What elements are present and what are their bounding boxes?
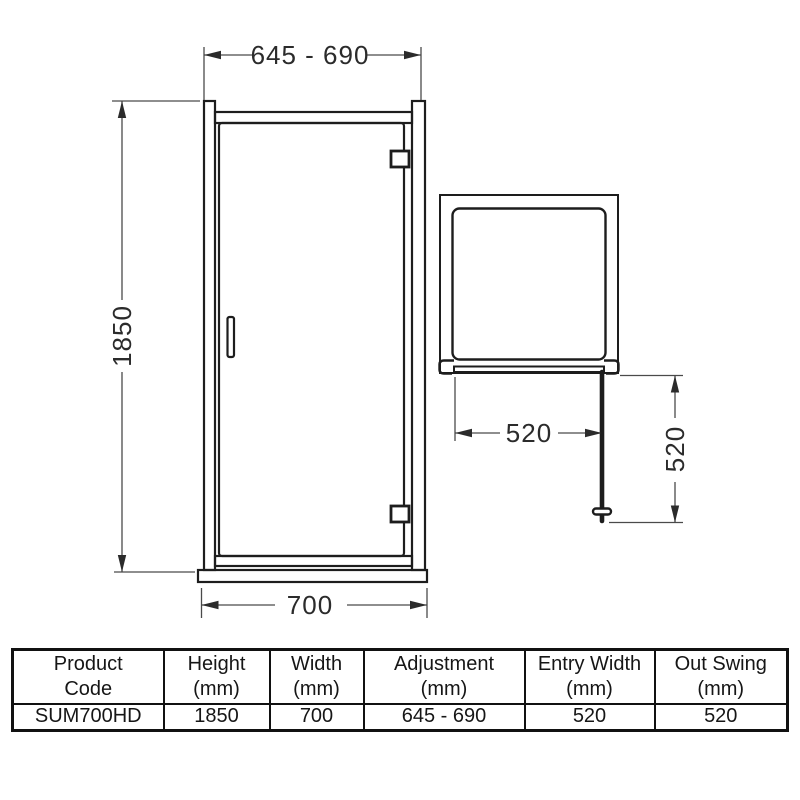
col-header-line1: Out Swing [656,652,787,677]
open-door-handle-plan [593,509,611,515]
shower-tray [198,570,427,582]
spec-table-data-row: SUM700HD 1850 700 645 - 690 520 520 [13,704,788,731]
cell-out-swing: 520 [655,704,788,731]
wall-bracket-right-plan [604,361,619,374]
cell-product-code: SUM700HD [13,704,164,731]
dim-out-swing-label: 520 [660,426,690,472]
left-wall-profile [204,101,215,570]
dim-width-label: 700 [287,590,333,620]
tray-outline-plan [440,195,618,373]
cell-height: 1850 [164,704,270,731]
spec-table: Product Code Height (mm) Width (mm) Adju… [11,648,789,732]
bottom-rail [215,556,412,566]
dim-entry-width-label: 520 [506,418,552,448]
col-header-line2: (mm) [656,677,787,702]
door-handle [228,317,235,357]
right-wall-profile [412,101,425,570]
technical-drawing: 645 - 690 1850 700 520 [0,0,800,645]
col-header-line2: (mm) [271,677,363,702]
wall-bracket-left-plan [440,361,455,374]
col-header-entry-width: Entry Width (mm) [525,650,655,704]
hinge-bottom [391,506,409,522]
col-header-line1: Width [271,652,363,677]
spec-table-header-row: Product Code Height (mm) Width (mm) Adju… [13,650,788,704]
dim-adjustment-label: 645 - 690 [251,40,370,70]
dim-height-label: 1850 [107,305,137,367]
glass-door-panel [219,123,404,556]
col-header-line2: (mm) [165,677,269,702]
col-header-line2: (mm) [526,677,654,702]
door-panel-plan [454,367,604,373]
col-header-product-code: Product Code [13,650,164,704]
col-header-width: Width (mm) [270,650,364,704]
plan-view [440,195,619,521]
col-header-line1: Adjustment [365,652,524,677]
col-header-line2: (mm) [365,677,524,702]
col-header-line2: Code [14,677,163,702]
cell-entry-width: 520 [525,704,655,731]
col-header-line1: Entry Width [526,652,654,677]
tray-inner-outline-plan [453,209,606,360]
hinge-top [391,151,409,167]
cell-adjustment: 645 - 690 [364,704,525,731]
col-header-out-swing: Out Swing (mm) [655,650,788,704]
front-elevation-view [198,101,427,582]
col-header-height: Height (mm) [164,650,270,704]
col-header-line1: Height [165,652,269,677]
col-header-adjustment: Adjustment (mm) [364,650,525,704]
cell-width: 700 [270,704,364,731]
top-rail [215,112,412,123]
col-header-line1: Product [14,652,163,677]
